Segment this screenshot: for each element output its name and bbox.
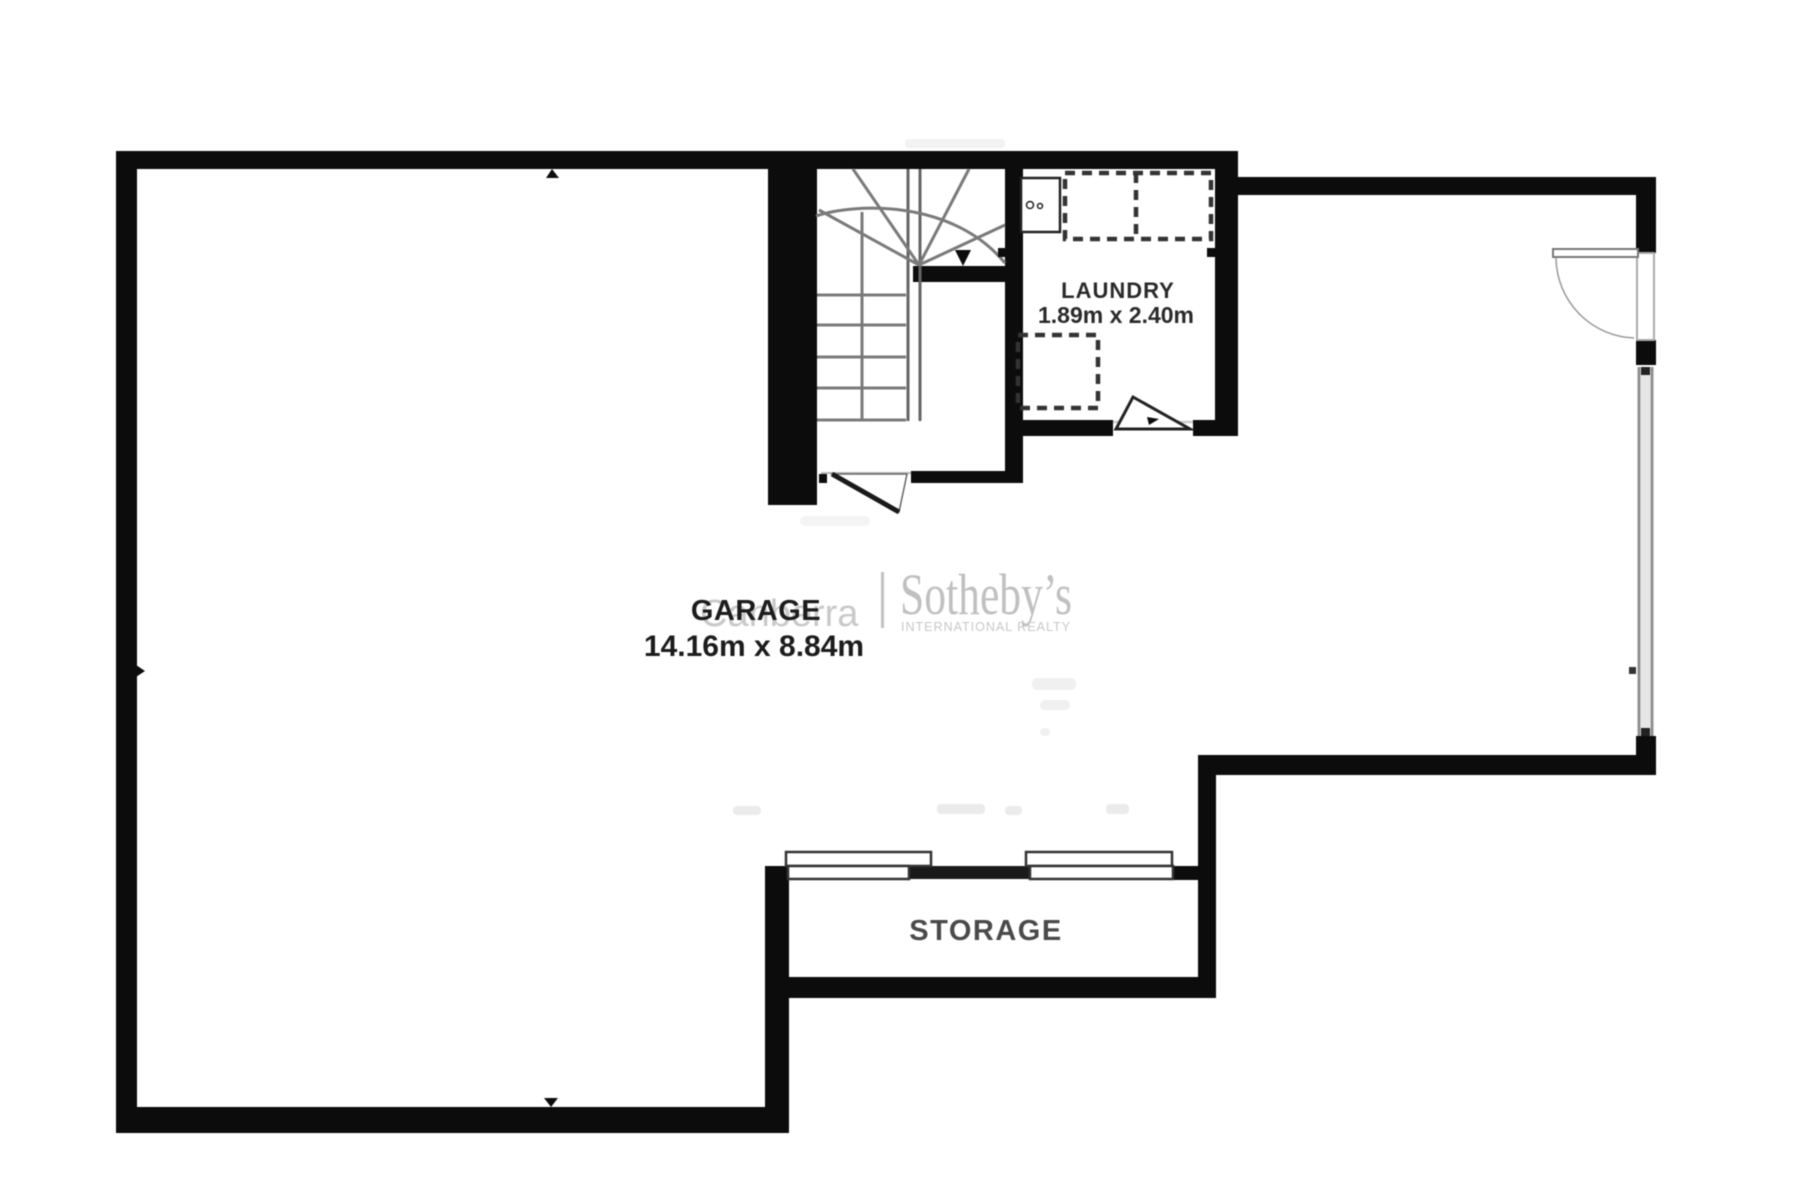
- svg-text:1.89m x 2.40m: 1.89m x 2.40m: [1038, 302, 1194, 328]
- svg-text:GARAGE: GARAGE: [691, 595, 821, 627]
- svg-text:Sotheby’s: Sotheby’s: [900, 562, 1072, 627]
- svg-text:STORAGE: STORAGE: [909, 915, 1062, 947]
- svg-text:INTERNATIONAL REALTY: INTERNATIONAL REALTY: [901, 619, 1071, 634]
- svg-text:LAUNDRY: LAUNDRY: [1061, 278, 1175, 303]
- svg-text:14.16m x 8.84m: 14.16m x 8.84m: [644, 630, 864, 663]
